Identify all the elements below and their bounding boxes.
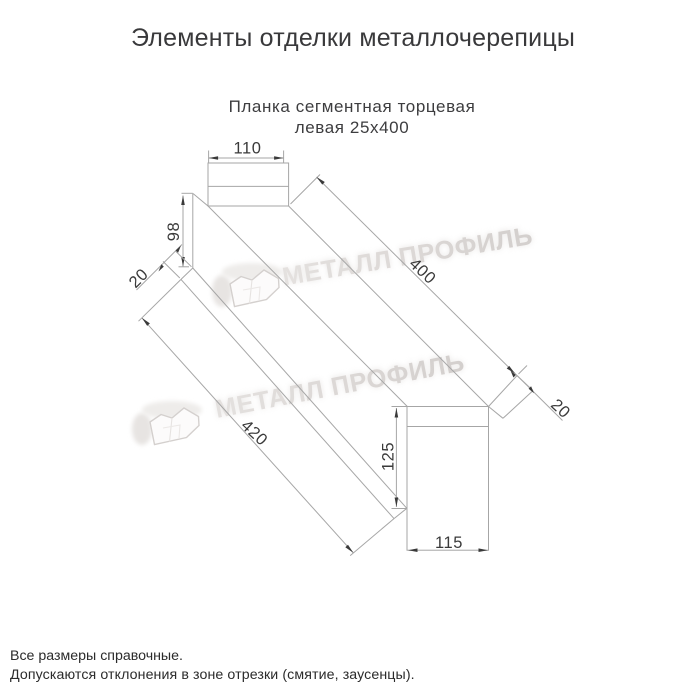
svg-text:420: 420 [237,416,271,449]
svg-text:115: 115 [435,534,463,552]
svg-text:МЕТАЛЛ ПРОФИЛЬ: МЕТАЛЛ ПРОФИЛЬ [280,222,535,291]
svg-text:МЕТАЛЛ ПРОФИЛЬ: МЕТАЛЛ ПРОФИЛЬ [213,348,467,423]
svg-text:20: 20 [126,265,153,292]
svg-text:98: 98 [165,222,183,242]
svg-text:20: 20 [547,396,574,423]
svg-text:125: 125 [379,442,397,471]
svg-text:110: 110 [233,140,261,158]
